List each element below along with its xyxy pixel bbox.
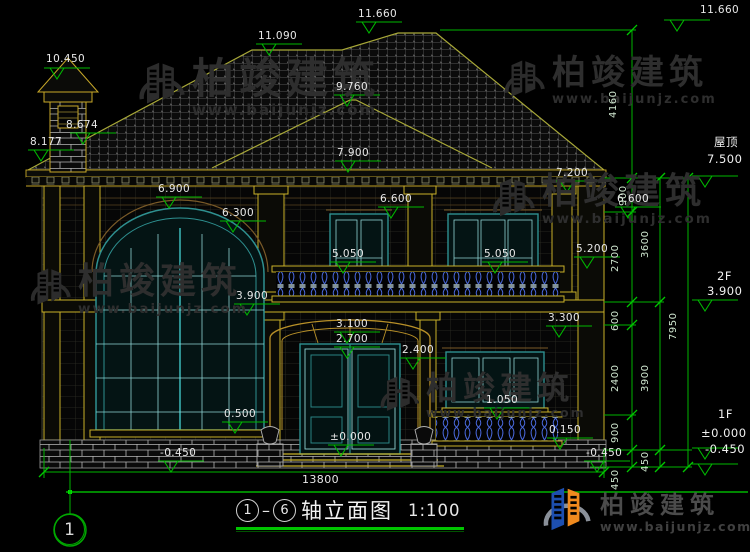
dim-2700: 2700 — [610, 245, 621, 272]
elevation-roof-slope-upper: 8.674 — [66, 119, 98, 131]
elevation-entry-arch-top: 3.100 — [336, 318, 368, 330]
elevation-window-sill-2f-center: 5.050 — [332, 248, 364, 260]
level-2f-label: 2F — [717, 269, 732, 283]
balcony-railing — [272, 266, 564, 302]
elevation-ridge-main: 11.660 — [358, 8, 397, 20]
level-roof-value: 7.500 — [707, 152, 742, 166]
dim-4160: 4160 — [608, 91, 619, 118]
title-dash: – — [262, 501, 270, 520]
axis-bubble: 1 — [54, 514, 85, 545]
cad-elevation-screenshot: 柏竣建筑 www.baijunjz.com 柏竣建筑 www.baijunjz.… — [0, 0, 750, 552]
roof — [28, 33, 604, 170]
elevation-window-sill-2f-right: 5.050 — [484, 248, 516, 260]
elevation-eave-left: 6.900 — [158, 183, 190, 195]
level-2f-value: 3.900 — [707, 284, 742, 298]
elevation-chimney-top: 10.450 — [46, 53, 85, 65]
dim-7950: 7950 — [668, 313, 679, 340]
elevation-drawing — [0, 0, 750, 552]
company-logo: 柏竣建筑 www.baijunjz.com — [538, 484, 750, 542]
elevation-entry-arch-spring: 2.700 — [336, 333, 368, 345]
dim-900-top: 900 — [618, 185, 629, 206]
dim-3900: 3900 — [640, 365, 651, 392]
company-logo-icon — [538, 484, 592, 542]
drawing-title: 1 – 6 轴立面图 1:100 — [236, 495, 461, 525]
dim-13800: 13800 — [302, 473, 339, 486]
elevation-pilaster-base-2f: 5.200 — [576, 243, 608, 255]
level-1f-value: ±0.000 — [701, 426, 747, 440]
company-logo-url: www.baijunjz.com — [600, 521, 750, 534]
cornice — [26, 170, 606, 186]
elevation-window-head-2f-center: 6.600 — [380, 193, 412, 205]
title-underline — [236, 527, 464, 530]
elevation-balcony-floor: 3.900 — [236, 290, 268, 302]
title-axis-from: 1 — [236, 499, 259, 522]
dim-600: 600 — [610, 310, 621, 331]
elevation-arched-window-top: 6.300 — [222, 207, 254, 219]
level-1f-below-value: -0.450 — [705, 442, 745, 456]
dim-2400: 2400 — [610, 365, 621, 392]
title-scale: 1:100 — [408, 501, 461, 520]
elevation-eave-right: 7.200 — [556, 167, 588, 179]
terrace-railing — [432, 412, 562, 446]
dim-3600: 3600 — [640, 231, 651, 258]
level-1f-label: 1F — [718, 407, 733, 421]
dim-900-bottom: 900 — [610, 422, 621, 443]
elevation-ground-right: -0.450 — [586, 447, 622, 459]
elevation-ground-left: -0.450 — [160, 447, 196, 459]
company-logo-brand: 柏竣建筑 — [600, 493, 750, 517]
elevation-roof-slope-lower: 8.177 — [30, 136, 62, 148]
elevation-base-course: 0.500 — [224, 408, 256, 420]
elevation-eave-center: 7.900 — [337, 147, 369, 159]
elevation-entry-floor: ±0.000 — [330, 431, 371, 443]
arched-window — [90, 200, 272, 437]
elevation-terrace-base: 0.150 — [549, 424, 581, 436]
elevation-railing-top-1f: 3.300 — [548, 312, 580, 324]
dim-450: 450 — [640, 451, 651, 472]
elevation-ridge-secondary: 9.760 — [336, 81, 368, 93]
elevation-overall-top: 11.660 — [700, 4, 739, 16]
elevation-window-head-1f: 2.400 — [402, 344, 434, 356]
title-text: 轴立面图 — [301, 495, 393, 525]
title-underline-shadow — [236, 531, 464, 532]
elevation-window-sill-1f: 1.050 — [486, 394, 518, 406]
level-roof-label: 屋顶 — [714, 134, 738, 150]
elevation-ridge-left: 11.090 — [258, 30, 297, 42]
title-axis-to: 6 — [273, 499, 296, 522]
